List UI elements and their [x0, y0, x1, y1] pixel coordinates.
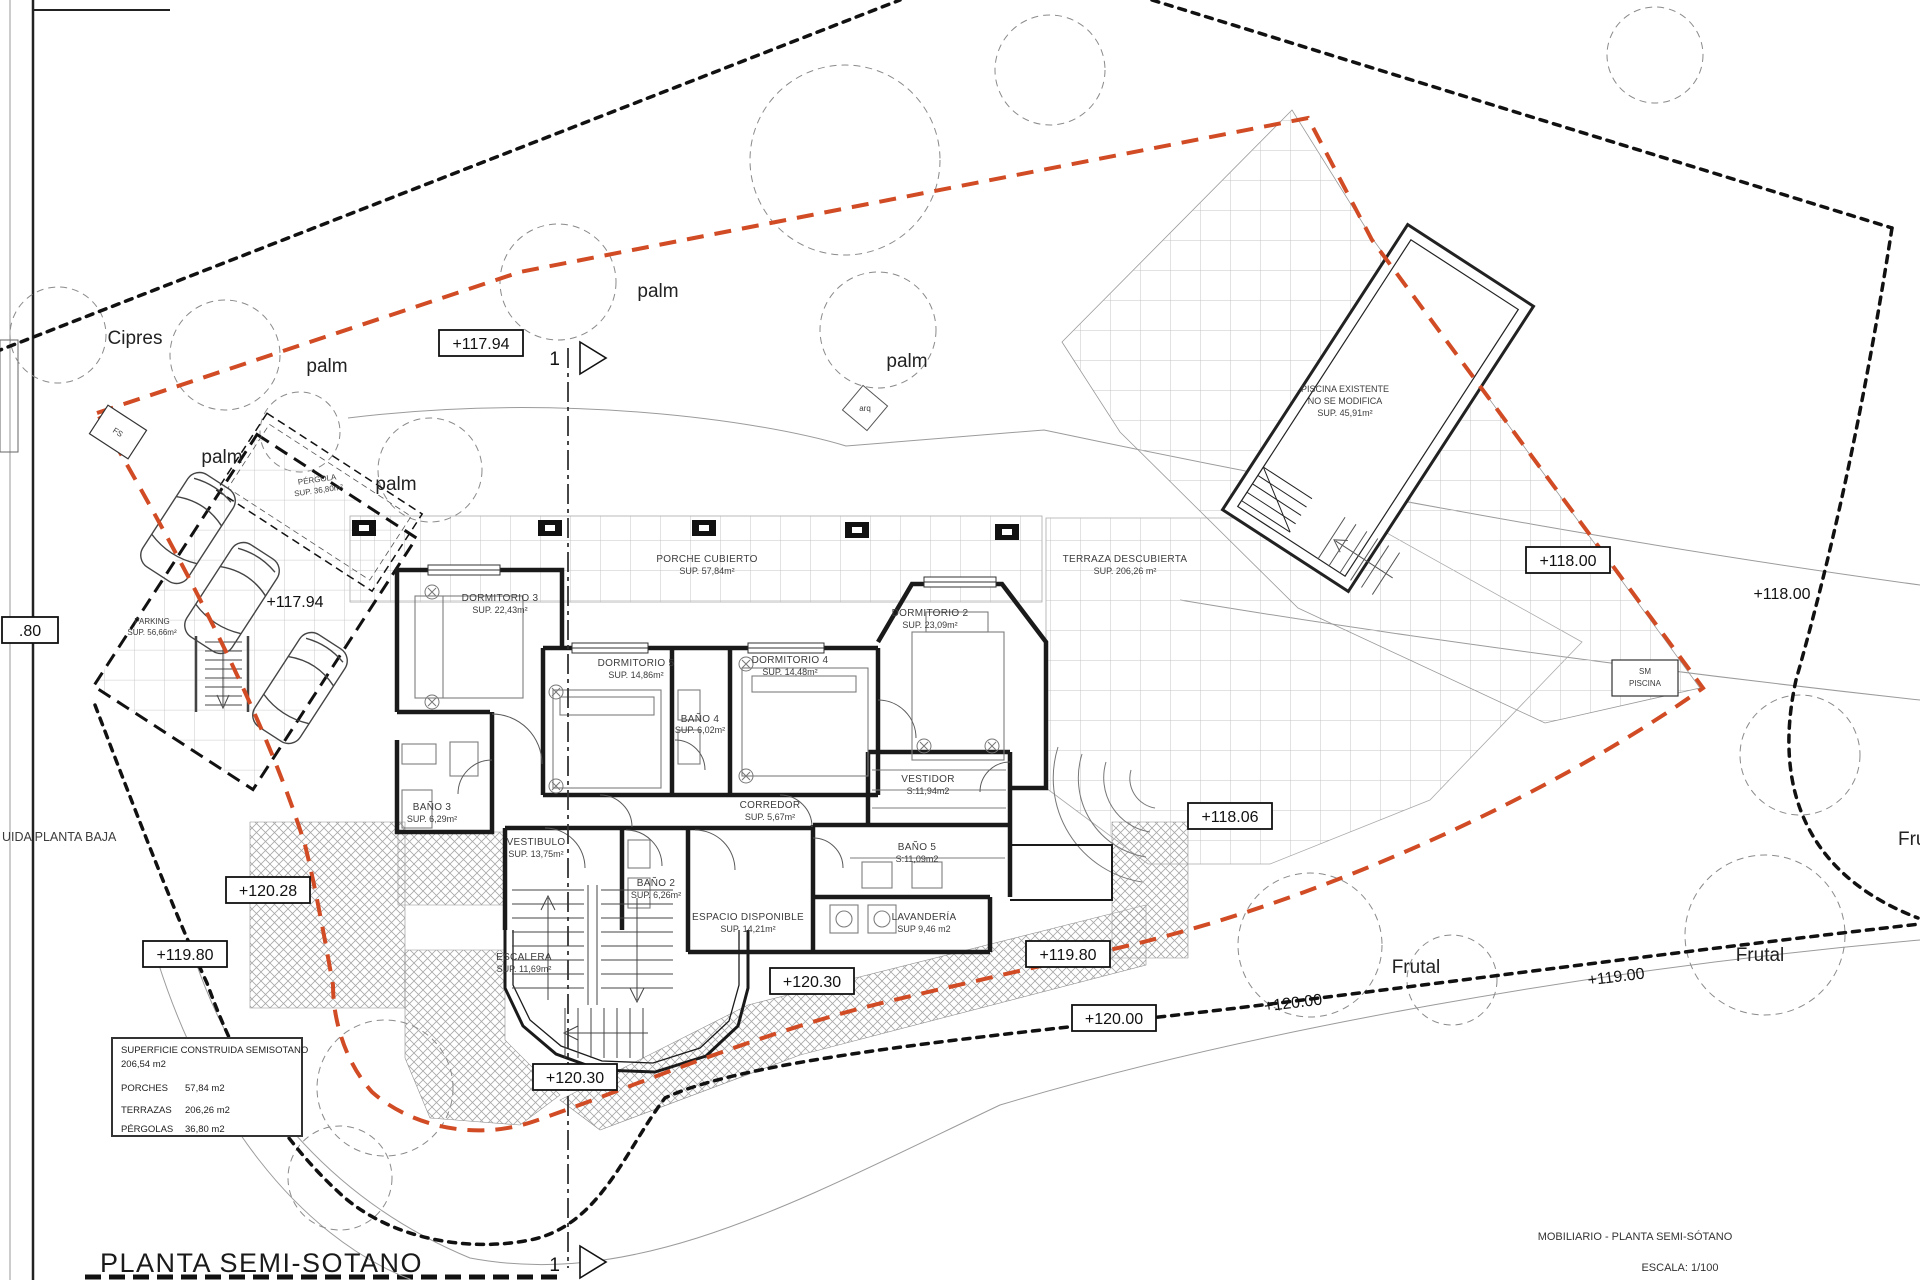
legend-terrazas-label: TERRAZAS [121, 1105, 172, 1116]
level-118-06-box: +118.06 [1201, 809, 1258, 826]
clipped-note-planta-baja: UIDA PLANTA BAJA [2, 830, 117, 844]
label-terraza-name: TERRAZA DESCUBIERTA [1063, 554, 1188, 565]
level-118-00-box: +118.00 [1539, 553, 1596, 570]
label-bano2-sup: SUP. 6,26m² [631, 890, 681, 900]
hatched-ground [250, 822, 1188, 1130]
label-espacio-sup: SUP. 14,21m² [720, 924, 775, 934]
sm-marker-line1: SM [1639, 667, 1651, 676]
label-bano5-name: BAÑO 5 [898, 840, 937, 853]
section-number-bottom: 1 [549, 1255, 560, 1276]
level-clipped-80-box: .80 [19, 623, 41, 640]
label-porche-name: PORCHE CUBIERTO [656, 554, 757, 565]
label-dorm4-name: DORMITORIO 4 [752, 655, 829, 666]
label-dorm2-sup: SUP. 23,09m² [902, 620, 957, 630]
legend-box: SUPERFICIE CONSTRUIDA SEMISOTANO 206,54 … [112, 1038, 308, 1136]
footer-drawing-name: MOBILIARIO - PLANTA SEMI-SÓTANO [1538, 1230, 1733, 1243]
level-119-80-box-right: +119.80 [1039, 947, 1096, 964]
level-120-28-box: +120.28 [239, 883, 297, 900]
label-dorm2-name: DORMITORIO 2 [892, 608, 969, 619]
legend-title: SUPERFICIE CONSTRUIDA SEMISOTANO [121, 1045, 308, 1056]
label-porche-sup: SUP. 57,84m² [679, 566, 734, 576]
section-number-top: 1 [549, 349, 560, 370]
label-bano4-name: BAÑO 4 [681, 712, 720, 725]
label-bano2-name: BAÑO 2 [637, 876, 676, 889]
tree-label-cipres: Cipres [108, 328, 163, 349]
level-120-00-box: +120.00 [1085, 1011, 1143, 1028]
label-vestidor-sup: S:11,94m2 [907, 786, 950, 796]
sm-marker-line2: PISCINA [1629, 679, 1662, 688]
legend-pergolas-label: PÉRGOLAS [121, 1124, 173, 1135]
label-piscina-line2: NO SE MODIFICA [1308, 396, 1383, 406]
label-dorm3-name: DORMITORIO 3 [462, 593, 539, 604]
section-flag-bottom [580, 1246, 606, 1278]
tree-label-palm-3: palm [375, 474, 416, 495]
label-escalera-name: ESCALERA [496, 952, 552, 963]
label-vestibulo-name: VESTIBULO [507, 837, 566, 848]
level-119-80-box-left: +119.80 [156, 947, 213, 964]
arq-marker-label: arq [859, 404, 871, 413]
level-117-94-box: +117.94 [452, 336, 509, 353]
label-dorm5-sup: SUP. 14,86m² [608, 670, 663, 680]
label-piscina-line1: PISCINA EXISTENTE [1301, 384, 1389, 394]
label-corredor-sup: SUP. 5,67m² [745, 812, 795, 822]
label-espacio-name: ESPACIO DISPONIBLE [692, 912, 804, 923]
label-bano5-sup: S:11,09m2 [896, 854, 939, 864]
section-line: 1 1 [549, 342, 606, 1278]
tree-label-palm-4: palm [637, 281, 678, 302]
tree-label-palm-2: palm [201, 447, 242, 468]
level-117-94-plain: +117.94 [266, 594, 323, 611]
label-corredor-name: CORREDOR [740, 800, 801, 811]
label-dorm4-sup: SUP. 14,48m² [762, 667, 817, 677]
legend-pergolas-value: 36,80 m2 [185, 1124, 225, 1135]
footer-scale: ESCALA: 1/100 [1641, 1262, 1718, 1274]
level-118-00-plain: +118.00 [1753, 586, 1810, 603]
tree-label-palm-1: palm [306, 356, 347, 377]
legend-porches-value: 57,84 m2 [185, 1083, 225, 1094]
label-dorm3-sup: SUP. 22,43m² [472, 605, 527, 615]
label-bano3-sup: SUP. 6,29m² [407, 814, 457, 824]
legend-porches-label: PORCHES [121, 1083, 168, 1094]
level-120-00-plain: +120.00 [1263, 991, 1323, 1015]
label-vestibulo-sup: SUP. 13,75m² [508, 849, 563, 859]
level-119-00-plain: +119.00 [1587, 966, 1646, 990]
level-120-30-box-upper: +120.30 [783, 974, 841, 991]
tree-label-frutal-clipped: Frutal [1898, 829, 1920, 850]
label-lavanderia-name: LAVANDERÍA [892, 910, 957, 923]
tree-label-palm-5: palm [886, 351, 927, 372]
label-vestidor-name: VESTIDOR [901, 774, 955, 785]
legend-total: 206,54 m2 [121, 1059, 166, 1070]
label-lavanderia-sup: SUP 9,46 m2 [897, 924, 950, 934]
floor-plan-page: 1 1 FS SM PISCINA arq +117.94 +118.00 +1… [0, 0, 1920, 1280]
tree-label-frutal-1: Frutal [1392, 957, 1441, 978]
label-terraza-sup: SUP. 206,26 m² [1094, 566, 1157, 576]
label-bano4-sup: SUP. 6,02m² [675, 725, 725, 735]
label-bano3-name: BAÑO 3 [413, 800, 452, 813]
label-escalera-sup: SUP. 11,69m² [497, 964, 552, 974]
level-120-30-box-lower: +120.30 [546, 1070, 604, 1087]
drawing-title: PLANTA SEMI-SOTANO [100, 1248, 423, 1278]
floor-plan-drawing: 1 1 FS SM PISCINA arq +117.94 +118.00 +1… [0, 0, 1920, 1280]
legend-terrazas-value: 206,26 m2 [185, 1105, 230, 1116]
tree-label-frutal-2: Frutal [1736, 945, 1785, 966]
label-piscina-line3: SUP. 45,91m² [1317, 408, 1372, 418]
label-parking-sup: SUP. 56,66m² [127, 628, 177, 637]
label-parking-name: PARKING [134, 617, 169, 626]
label-dorm5-name: DORMITORIO 5 [598, 658, 675, 669]
section-flag-top [580, 342, 606, 374]
parking-area [94, 413, 423, 789]
